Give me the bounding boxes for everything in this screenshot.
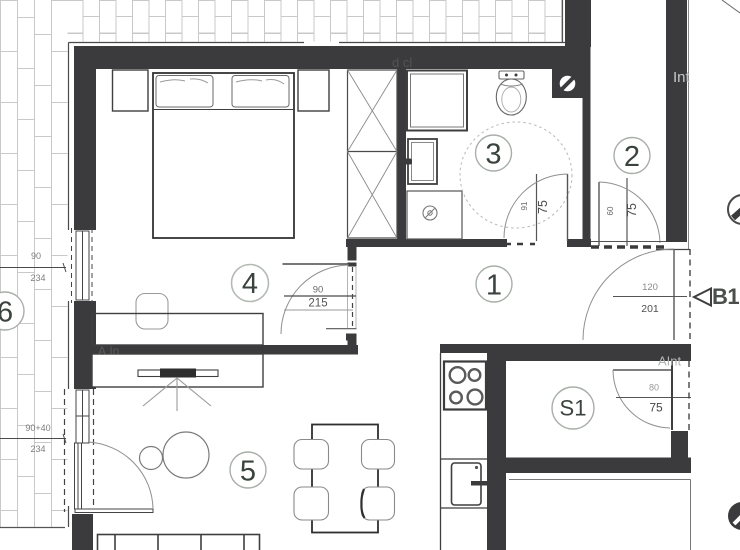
svg-text:80: 80 — [649, 383, 659, 393]
svg-text:d cl: d cl — [392, 55, 412, 70]
svg-text:3: 3 — [485, 139, 501, 171]
svg-text:S1: S1 — [560, 396, 587, 421]
svg-text:90+40: 90+40 — [25, 423, 50, 433]
svg-text:B1: B1 — [712, 284, 739, 309]
svg-text:A In: A In — [98, 344, 119, 358]
svg-text:AInt: AInt — [658, 354, 682, 369]
svg-text:1: 1 — [486, 270, 502, 302]
svg-text:2: 2 — [624, 141, 640, 173]
svg-text:120: 120 — [642, 282, 658, 293]
svg-text:91: 91 — [520, 201, 529, 210]
svg-text:5: 5 — [240, 456, 256, 488]
svg-text:234: 234 — [30, 273, 45, 283]
svg-text:Int: Int — [673, 69, 691, 86]
svg-text:234: 234 — [30, 444, 45, 454]
svg-text:215: 215 — [308, 298, 327, 310]
svg-text:75: 75 — [625, 203, 639, 217]
svg-text:75: 75 — [536, 200, 550, 214]
svg-text:60: 60 — [606, 206, 615, 215]
svg-text:201: 201 — [641, 303, 659, 315]
svg-text:75: 75 — [649, 401, 663, 415]
svg-text:4: 4 — [242, 268, 258, 300]
svg-text:90: 90 — [313, 285, 324, 296]
svg-text:90: 90 — [31, 251, 41, 261]
svg-text:6: 6 — [0, 297, 13, 329]
